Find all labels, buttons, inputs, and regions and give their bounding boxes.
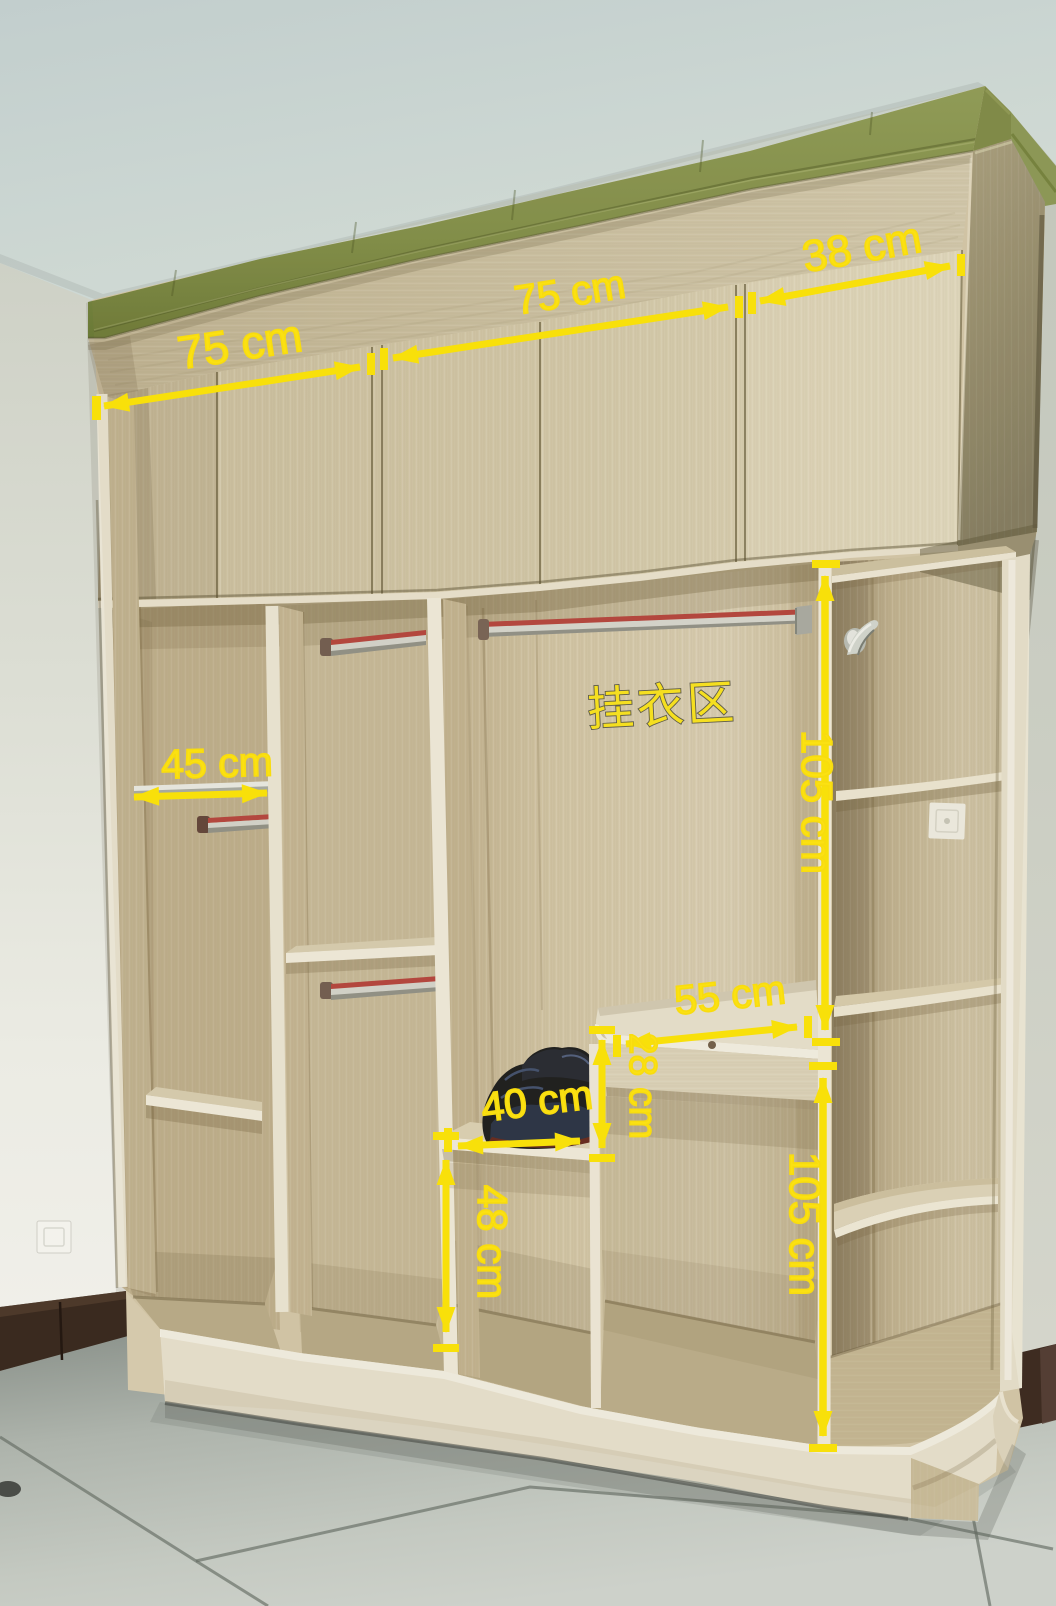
svg-text:28 cm: 28 cm bbox=[621, 1033, 664, 1139]
svg-text:105 cm: 105 cm bbox=[792, 730, 841, 874]
svg-text:挂衣区: 挂衣区 bbox=[586, 675, 739, 736]
svg-text:45 cm: 45 cm bbox=[161, 739, 274, 788]
svg-text:48 cm: 48 cm bbox=[469, 1185, 516, 1299]
svg-text:105 cm: 105 cm bbox=[780, 1152, 829, 1296]
